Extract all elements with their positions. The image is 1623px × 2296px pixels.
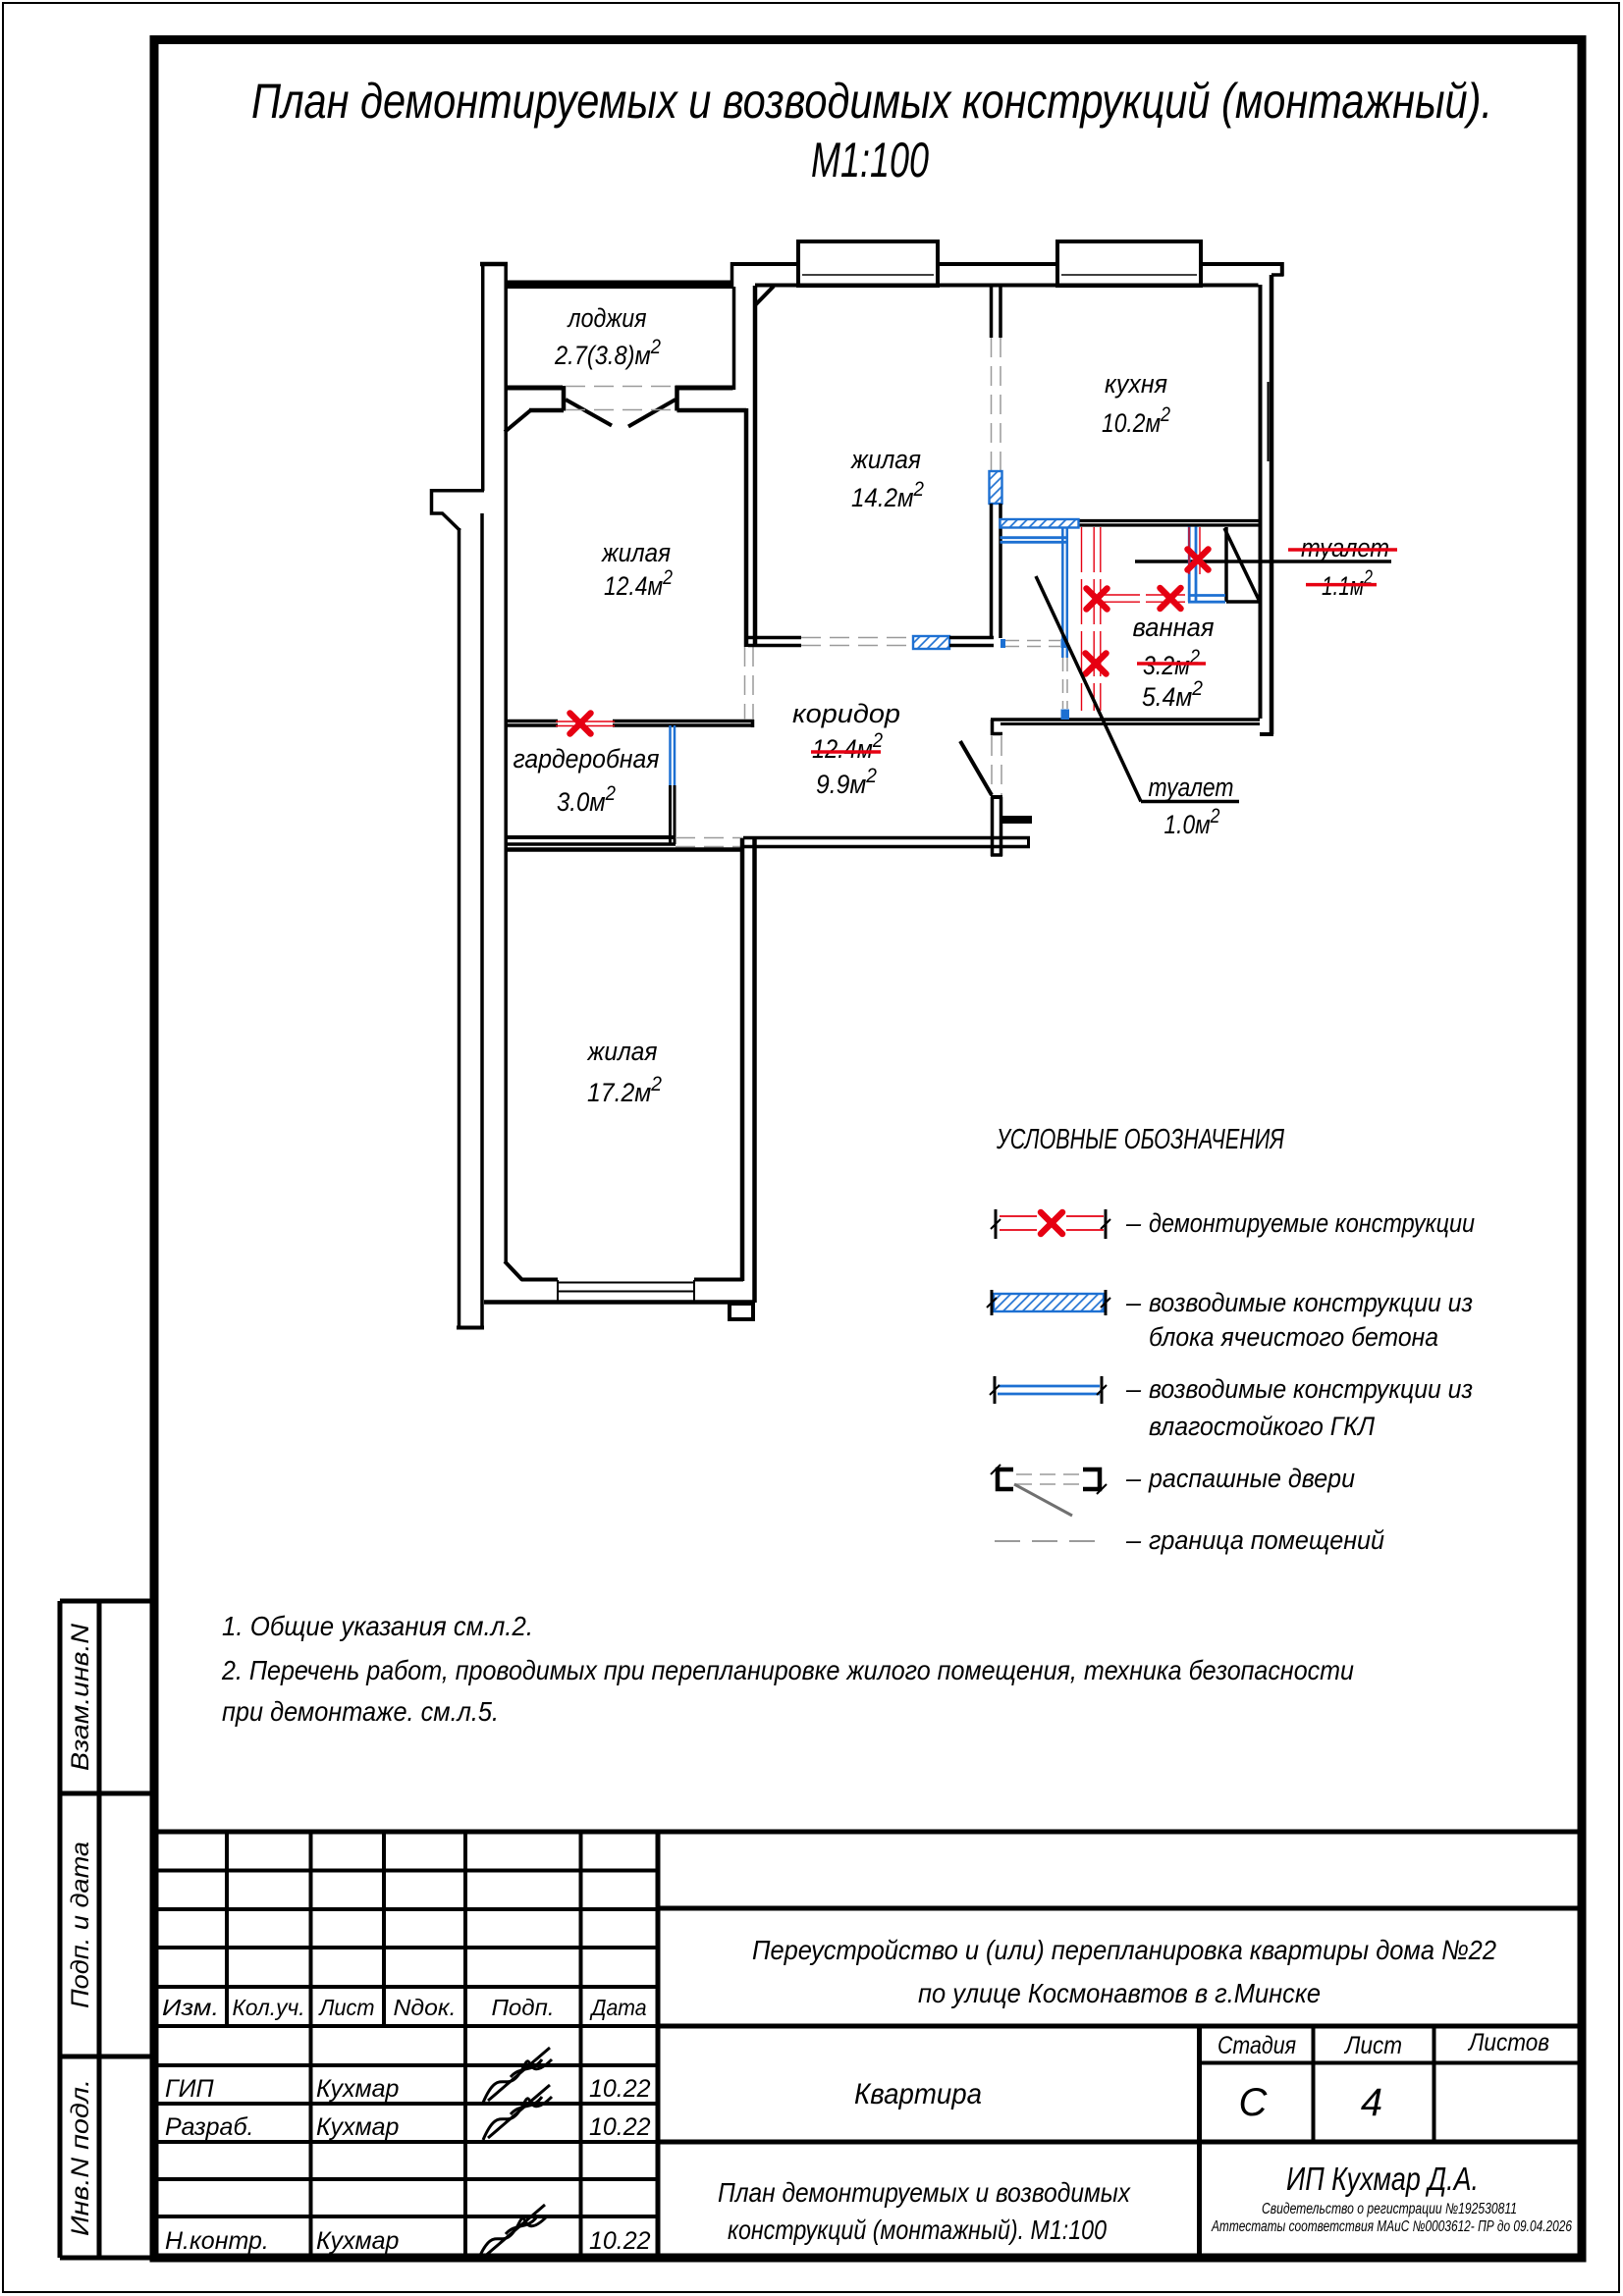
- svg-text:Стадия: Стадия: [1217, 2032, 1296, 2059]
- svg-text:Н.контр.: Н.контр.: [165, 2227, 269, 2255]
- svg-text:туалет: туалет: [1301, 533, 1389, 562]
- svg-text:Аттестаты соответствия МАиС №: Аттестаты соответствия МАиС №0003612- ПР…: [1211, 2218, 1572, 2235]
- svg-text:при демонтаже. см.л.5.: при демонтаже. см.л.5.: [222, 1696, 499, 1727]
- svg-text:Взам.инв.N: Взам.инв.N: [67, 1623, 94, 1771]
- svg-text:распашные двери: распашные двери: [1148, 1464, 1355, 1493]
- svg-text:10.22: 10.22: [589, 2075, 651, 2103]
- svg-text:17.2м2: 17.2м2: [587, 1073, 662, 1107]
- svg-text:10.22: 10.22: [589, 2227, 651, 2255]
- svg-text:УСЛОВНЫЕ ОБОЗНАЧЕНИЯ: УСЛОВНЫЕ ОБОЗНАЧЕНИЯ: [996, 1124, 1284, 1155]
- svg-text:Подп.: Подп.: [492, 1995, 555, 2020]
- svg-text:Листов: Листов: [1467, 2029, 1549, 2056]
- svg-text:Подп. и дата: Подп. и дата: [67, 1842, 94, 2008]
- svg-text:2.7(3.8)м2: 2.7(3.8)м2: [554, 336, 661, 370]
- svg-text:жилая: жилая: [587, 1037, 658, 1066]
- svg-text:Лист: Лист: [1343, 2032, 1402, 2059]
- svg-text:14.2м2: 14.2м2: [851, 478, 924, 512]
- svg-text:Кухмар: Кухмар: [316, 2075, 399, 2103]
- svg-text:План демонтируемых и возводимы: План демонтируемых и возводимых: [718, 2177, 1131, 2208]
- svg-text:возводимые конструкции из: возводимые конструкции из: [1149, 1288, 1473, 1317]
- svg-text:Кухмар: Кухмар: [316, 2113, 399, 2141]
- svg-text:4: 4: [1361, 2081, 1382, 2124]
- svg-text:–: –: [1125, 1525, 1142, 1555]
- svg-text:Кухмар: Кухмар: [316, 2227, 399, 2255]
- svg-text:ИП Кухмар Д.А.: ИП Кухмар Д.А.: [1286, 2161, 1479, 2197]
- svg-text:влагостойкого ГКЛ: влагостойкого ГКЛ: [1149, 1412, 1375, 1441]
- svg-text:Кол.уч.: Кол.уч.: [233, 1995, 305, 2020]
- svg-text:План демонтируемых и возводимы: План демонтируемых и возводимых конструк…: [251, 74, 1492, 129]
- svg-text:конструкций (монтажный). М1:10: конструкций (монтажный). М1:100: [728, 2215, 1107, 2245]
- svg-text:Nдок.: Nдок.: [394, 1995, 457, 2020]
- svg-text:–: –: [1125, 1288, 1142, 1317]
- svg-text:лоджия: лоджия: [567, 303, 647, 333]
- svg-text:12.4м2: 12.4м2: [604, 566, 673, 601]
- svg-text:2. Перечень работ, проводимых: 2. Перечень работ, проводимых при перепл…: [221, 1655, 1354, 1685]
- svg-text:Квартира: Квартира: [854, 2078, 982, 2110]
- svg-text:М1:100: М1:100: [811, 133, 929, 187]
- svg-text:жилая: жилая: [850, 445, 921, 474]
- svg-text:коридор: коридор: [792, 699, 900, 728]
- svg-text:туалет: туалет: [1149, 773, 1234, 802]
- svg-text:Переустройство и (или) перепла: Переустройство и (или) перепланировка кв…: [752, 1935, 1496, 1965]
- svg-text:ГИП: ГИП: [165, 2075, 214, 2103]
- svg-text:гардеробная: гардеробная: [514, 744, 660, 774]
- svg-text:граница помещений: граница помещений: [1149, 1525, 1384, 1555]
- svg-text:12.4м2: 12.4м2: [812, 729, 883, 764]
- svg-text:Лист: Лист: [318, 1995, 375, 2020]
- svg-text:С: С: [1239, 2081, 1269, 2124]
- svg-text:–: –: [1125, 1464, 1142, 1493]
- svg-text:возводимые конструкции из: возводимые конструкции из: [1149, 1374, 1473, 1404]
- svg-text:демонтируемые конструкции: демонтируемые конструкции: [1149, 1208, 1475, 1238]
- svg-text:10.2м2: 10.2м2: [1102, 403, 1170, 438]
- svg-text:10.22: 10.22: [589, 2113, 651, 2141]
- svg-text:Разраб.: Разраб.: [165, 2113, 253, 2141]
- svg-text:блока ячеистого бетона: блока ячеистого бетона: [1149, 1322, 1438, 1352]
- svg-text:Инв.N подл.: Инв.N подл.: [67, 2079, 94, 2236]
- svg-text:жилая: жилая: [601, 538, 671, 567]
- svg-text:по улице Космонавтов в г.Минск: по улице Космонавтов в г.Минске: [918, 1978, 1321, 2008]
- svg-text:–: –: [1125, 1208, 1142, 1238]
- svg-text:1. Общие указания см.л.2.: 1. Общие указания см.л.2.: [222, 1611, 533, 1641]
- svg-text:Дата: Дата: [589, 1995, 647, 2020]
- svg-text:кухня: кухня: [1105, 369, 1167, 399]
- svg-text:Изм.: Изм.: [162, 1995, 219, 2020]
- svg-text:ванная: ванная: [1133, 613, 1215, 642]
- svg-text:Свидетельство о регистрации №1: Свидетельство о регистрации №192530811: [1262, 2201, 1517, 2217]
- svg-text:–: –: [1125, 1374, 1142, 1404]
